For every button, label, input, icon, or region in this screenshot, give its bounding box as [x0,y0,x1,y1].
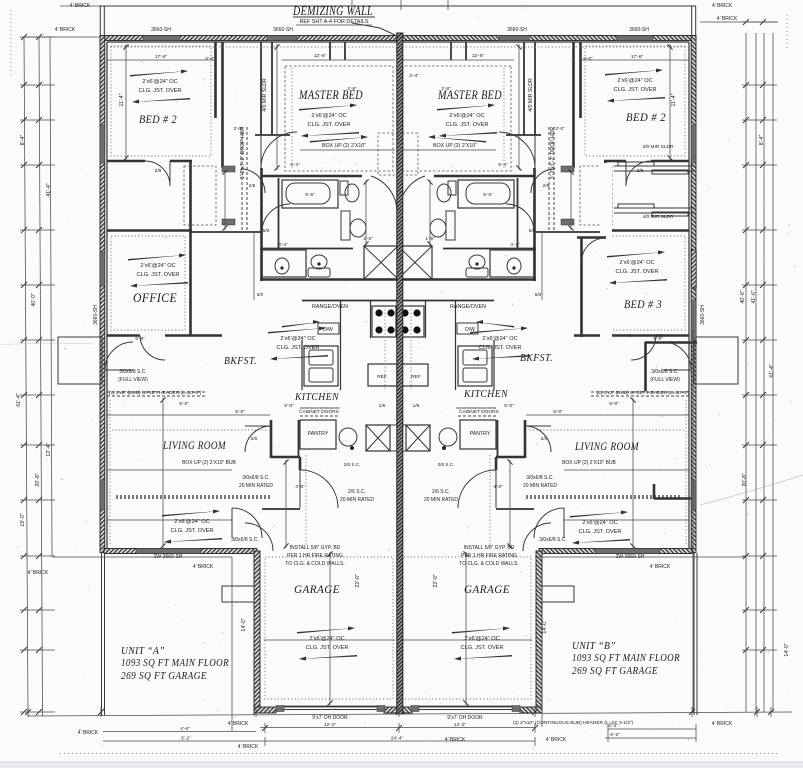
svg-text:19’-0”: 19’-0” [20,513,26,527]
svg-text:9’x7’ OH DOOR: 9’x7’ OH DOOR [312,715,348,721]
svg-text:CLG. JST. OVER: CLG. JST. OVER [139,88,182,94]
svg-text:41’-4”: 41’-4” [46,183,52,197]
svg-text:CABINET DOORS: CABINET DOORS [299,409,339,415]
svg-text:40’-6”: 40’-6” [740,290,746,304]
svg-text:RANGE/OVEN: RANGE/OVEN [450,304,486,310]
svg-text:PANTRY: PANTRY [470,431,491,437]
svg-text:17’-6”: 17’-6” [631,54,644,60]
svg-text:DEMIZING WALL: DEMIZING WALL [292,3,373,18]
svg-text:PER 1 HR FIRE RATING: PER 1 HR FIRE RATING [461,553,517,559]
svg-text:5’-6”: 5’-6” [483,192,493,197]
svg-text:2’x6’@24” OC: 2’x6’@24” OC [482,336,517,342]
svg-text:3/0x6/8 S.C.: 3/0x6/8 S.C. [539,537,567,543]
svg-text:CABINET DOORS: CABINET DOORS [459,409,499,415]
svg-text:D/W: D/W [323,327,333,333]
svg-text:3/0x6/8 S.C.: 3/0x6/8 S.C. [231,537,259,543]
svg-text:2/6 S.C.: 2/6 S.C. [432,489,450,495]
svg-text:11’-4”: 11’-4” [671,93,677,106]
svg-text:4’-6”: 4’-6” [180,726,190,732]
svg-text:3/0x6/8 S.C.: 3/0x6/8 S.C. [119,369,147,375]
svg-text:(2) 2’x2” (BUB) UPSET HEADER (: (2) 2’x2” (BUB) UPSET HEADER (L=10’-0”) [597,390,690,396]
svg-text:3660-SH: 3660-SH [273,27,293,33]
svg-text:12’-2”: 12’-2” [324,722,337,728]
svg-text:TO CLG. & COLD WALLS.: TO CLG. & COLD WALLS. [285,561,344,567]
svg-text:20 MIN RATED: 20 MIN RATED [424,497,458,503]
svg-text:TO CLG. & COLD WALLS.: TO CLG. & COLD WALLS. [459,561,518,567]
svg-text:9’x7’ OH DOOR: 9’x7’ OH DOOR [447,715,483,721]
svg-text:4’-4”: 4’-4” [608,723,618,729]
svg-text:22’-0”: 22’-0” [355,574,361,588]
svg-text:2’x6’@24” OC: 2’x6’@24” OC [619,260,654,266]
svg-text:3/0x6/8 S.C.: 3/0x6/8 S.C. [242,475,270,481]
svg-text:4’-4”: 4’-4” [510,242,520,247]
svg-text:CLG. JST. OVER: CLG. JST. OVER [308,122,351,128]
svg-text:4’ BRICK: 4’ BRICK [717,16,738,22]
svg-text:2/0: 2/0 [541,436,548,442]
svg-text:12’-2”: 12’-2” [454,722,467,728]
svg-text:2/6 S.C.: 2/6 S.C. [438,462,455,467]
svg-text:CLG. JST. OVER: CLG. JST. OVER [306,645,349,651]
svg-text:1/6: 1/6 [379,403,386,409]
svg-text:5’-8”: 5’-8” [135,336,145,341]
svg-text:REF: REF [411,374,421,380]
svg-text:4’ BRICK: 4’ BRICK [70,3,91,9]
svg-text:OFFICE: OFFICE [133,290,177,305]
svg-text:2/6 S.C.: 2/6 S.C. [344,462,361,467]
svg-text:5’-0”: 5’-0” [504,403,514,409]
svg-text:3’-2”x7’-2” DROP HDR: 3’-2”x7’-2” DROP HDR [240,127,246,180]
svg-text:4’ BRICK: 4’ BRICK [546,737,567,743]
svg-text:14’-0”: 14’-0” [542,620,548,634]
svg-text:12’-6”: 12’-6” [472,53,485,59]
svg-text:KITCHEN: KITCHEN [294,391,339,403]
svg-text:3660-SH: 3660-SH [629,27,649,33]
svg-text:UNIT “B”: UNIT “B” [572,640,616,652]
svg-text:REF SHT A-4 FOR DETAILS: REF SHT A-4 FOR DETAILS [300,19,369,25]
svg-text:2W-3660-SH: 2W-3660-SH [616,554,645,560]
svg-text:2’x6’@24” OC: 2’x6’@24” OC [311,113,346,119]
svg-text:3660-SH: 3660-SH [151,27,171,33]
svg-text:CLG. JST. OVER: CLG. JST. OVER [461,645,504,651]
svg-text:INSTALL 5/8” GYP. BD: INSTALL 5/8” GYP. BD [464,545,515,551]
svg-text:6’-2”: 6’-2” [610,732,620,738]
svg-text:4’ BRICK: 4’ BRICK [28,570,49,576]
svg-text:BED # 2: BED # 2 [626,110,666,124]
svg-text:3660-SH: 3660-SH [93,305,99,325]
svg-text:4’ BRICK: 4’ BRICK [238,744,259,750]
svg-text:4’ BRICK: 4’ BRICK [78,730,99,736]
svg-text:RANGE/OVEN: RANGE/OVEN [312,304,348,310]
svg-text:61’-4”: 61’-4” [16,393,22,407]
svg-text:8’-4”: 8’-4” [20,135,26,146]
svg-text:5’-0”: 5’-0” [235,409,245,415]
svg-text:2/8: 2/8 [543,183,550,189]
svg-text:22’-0”: 22’-0” [433,574,439,588]
svg-text:2’-8”: 2’-8” [441,86,451,91]
svg-text:2/8: 2/8 [249,183,256,189]
svg-text:BOX UP (2) 2’X10” BUB: BOX UP (2) 2’X10” BUB [182,460,236,466]
svg-text:BED # 3: BED # 3 [624,297,662,311]
svg-text:4’-0”: 4’-0” [295,484,305,489]
svg-text:41’-6”: 41’-6” [751,290,757,304]
svg-text:3’-0”: 3’-0” [555,126,565,131]
svg-text:BOX UP (2) 2’X10”: BOX UP (2) 2’X10” [322,143,366,149]
svg-text:40’-0”: 40’-0” [31,293,37,307]
svg-text:2’x6’@24” OC: 2’x6’@24” OC [582,520,617,526]
svg-text:2/8: 2/8 [637,168,644,174]
svg-text:BKFST.: BKFST. [224,356,257,367]
svg-text:20 MIN RATED: 20 MIN RATED [340,497,374,503]
svg-text:5’-0”: 5’-0” [609,401,619,407]
svg-text:3660-SH: 3660-SH [700,305,706,325]
svg-text:2’x6’@24” OC: 2’x6’@24” OC [280,336,315,342]
svg-text:4/0 MIR SLDR: 4/0 MIR SLDR [643,214,674,220]
svg-text:4’ BRICK: 4’ BRICK [712,3,733,9]
svg-text:LIVING ROOM: LIVING ROOM [574,439,639,453]
svg-text:5/0: 5/0 [535,292,542,297]
svg-text:4’ BRICK: 4’ BRICK [650,564,671,570]
svg-text:3/0x6/8 S.C.: 3/0x6/8 S.C. [526,475,554,481]
svg-text:5’-0”: 5’-0” [179,401,189,407]
svg-text:2/0: 2/0 [251,436,258,442]
svg-text:INSTALL 5/8” GYP. BD: INSTALL 5/8” GYP. BD [290,545,341,551]
svg-text:5’-0”: 5’-0” [583,56,593,61]
svg-text:2’x6’@24” OC: 2’x6’@24” OC [464,636,499,642]
svg-text:CLG. JST. OVER: CLG. JST. OVER [579,529,622,535]
svg-text:BOX UP (2) 2’X10”: BOX UP (2) 2’X10” [433,143,477,149]
svg-text:5’-0”: 5’-0” [284,403,294,409]
svg-text:PER 1 HR FIRE RATING: PER 1 HR FIRE RATING [287,553,343,559]
svg-text:11’-4”: 11’-4” [119,93,125,106]
svg-text:5/0: 5/0 [529,228,536,234]
svg-text:4’ BRICK: 4’ BRICK [193,564,214,570]
svg-text:KITCHEN: KITCHEN [463,388,508,400]
svg-text:5’-6”: 5’-6” [305,192,315,197]
svg-text:2’x6’@24” OC: 2’x6’@24” OC [309,636,344,642]
svg-text:1’-5”: 1’-5” [425,236,435,241]
svg-text:17’-6”: 17’-6” [155,54,168,60]
svg-text:REF: REF [377,374,387,380]
svg-text:4’ BRICK: 4’ BRICK [55,27,76,33]
svg-text:24’-4”: 24’-4” [391,736,404,742]
svg-text:4/0 MIR SLDR: 4/0 MIR SLDR [643,144,674,150]
svg-text:269 SQ FT GARAGE: 269 SQ FT GARAGE [121,670,207,682]
svg-text:12’-6”: 12’-6” [314,53,327,59]
svg-text:5’-0”: 5’-0” [205,56,215,61]
svg-text:2’-4”: 2’-4” [409,73,419,79]
svg-text:20 MIN RATED: 20 MIN RATED [523,483,557,489]
svg-text:4’ BRICK: 4’ BRICK [712,721,733,727]
svg-text:5’-8”: 5’-8” [653,336,663,341]
svg-text:CLG. JST. OVER: CLG. JST. OVER [277,345,320,351]
svg-text:5’-0”: 5’-0” [553,409,563,415]
svg-text:5’-2”: 5’-2” [181,736,191,742]
svg-text:(2) 2’x6” (BUB) UPSET HEADER (: (2) 2’x6” (BUB) UPSET HEADER (L=10’-0”) [109,390,202,396]
svg-text:4’-0”: 4’-0” [493,484,503,489]
svg-text:5/0: 5/0 [263,228,270,234]
svg-text:BKFST.: BKFST. [520,353,553,364]
svg-text:4’ BRICK: 4’ BRICK [228,721,249,727]
svg-text:GARAGE: GARAGE [464,582,510,596]
svg-text:CLG. JST. OVER: CLG. JST. OVER [171,528,214,534]
svg-text:BOX UP (2) 2’X10” BUB: BOX UP (2) 2’X10” BUB [562,460,616,466]
svg-text:2’-8”: 2’-8” [347,86,357,91]
svg-text:2/6 S.C.: 2/6 S.C. [348,489,366,495]
svg-text:269 SQ FT GARAGE: 269 SQ FT GARAGE [572,665,658,677]
svg-text:UNIT “A”: UNIT “A” [121,645,165,657]
svg-text:CLG. JST. OVER: CLG. JST. OVER [137,272,180,278]
svg-text:4/0 MIR SLDR: 4/0 MIR SLDR [528,78,534,112]
svg-text:2’x6’@24” OC: 2’x6’@24” OC [142,79,177,85]
svg-text:5’-4”: 5’-4” [290,162,300,167]
svg-text:3660-SH: 3660-SH [507,27,527,33]
svg-text:1’-5”: 1’-5” [363,236,373,241]
svg-text:BED # 2: BED # 2 [139,112,177,126]
svg-text:2W-3660-SH: 2W-3660-SH [154,554,183,560]
svg-text:14’-0”: 14’-0” [241,618,247,632]
svg-text:3’-2”x7’-2” DROP HDR: 3’-2”x7’-2” DROP HDR [550,127,556,180]
svg-text:CLG. JST. OVER: CLG. JST. OVER [479,345,522,351]
svg-text:2’x6’@24” OC: 2’x6’@24” OC [174,519,209,525]
svg-text:(FULL VIEW): (FULL VIEW) [650,377,680,383]
svg-text:12’-4”: 12’-4” [46,443,52,457]
svg-text:CLG. JST. OVER: CLG. JST. OVER [446,122,489,128]
svg-text:14’-0”: 14’-0” [784,643,790,657]
svg-text:4’ BRICK: 4’ BRICK [445,737,466,743]
svg-text:4/0 MIR SLDR: 4/0 MIR SLDR [262,78,268,112]
svg-text:61’-4”: 61’-4” [769,364,775,378]
svg-text:CLG. JST. OVER: CLG. JST. OVER [614,87,657,93]
svg-text:2/8: 2/8 [155,168,162,174]
svg-text:3/0x6/8 S.C.: 3/0x6/8 S.C. [651,369,679,375]
svg-text:20’-8”: 20’-8” [35,473,41,487]
svg-text:(FULL VIEW): (FULL VIEW) [118,377,148,383]
svg-text:LIVING ROOM: LIVING ROOM [162,438,226,452]
svg-text:2’x6’@24” OC: 2’x6’@24” OC [617,78,652,84]
svg-text:CLG. JST. OVER: CLG. JST. OVER [616,269,659,275]
svg-text:4’-4”: 4’-4” [278,242,288,247]
svg-text:5/0: 5/0 [257,292,264,297]
svg-text:1/6: 1/6 [413,403,420,409]
svg-text:8’-4”: 8’-4” [759,135,765,146]
svg-text:5’-4”: 5’-4” [498,162,508,167]
svg-text:2’x6’@24” OC: 2’x6’@24” OC [140,263,175,269]
svg-text:20’-8”: 20’-8” [742,473,748,487]
svg-text:2’x6’@24” OC: 2’x6’@24” OC [449,113,484,119]
svg-text:GARAGE: GARAGE [294,582,340,596]
svg-text:1093 SQ FT MAIN FLOOR: 1093 SQ FT MAIN FLOOR [572,652,680,664]
svg-text:D/W: D/W [465,327,475,333]
svg-text:PANTRY: PANTRY [308,431,329,437]
svg-text:1093 SQ FT MAIN FLOOR: 1093 SQ FT MAIN FLOOR [121,657,229,669]
svg-text:20 MIN RATED: 20 MIN RATED [239,483,273,489]
